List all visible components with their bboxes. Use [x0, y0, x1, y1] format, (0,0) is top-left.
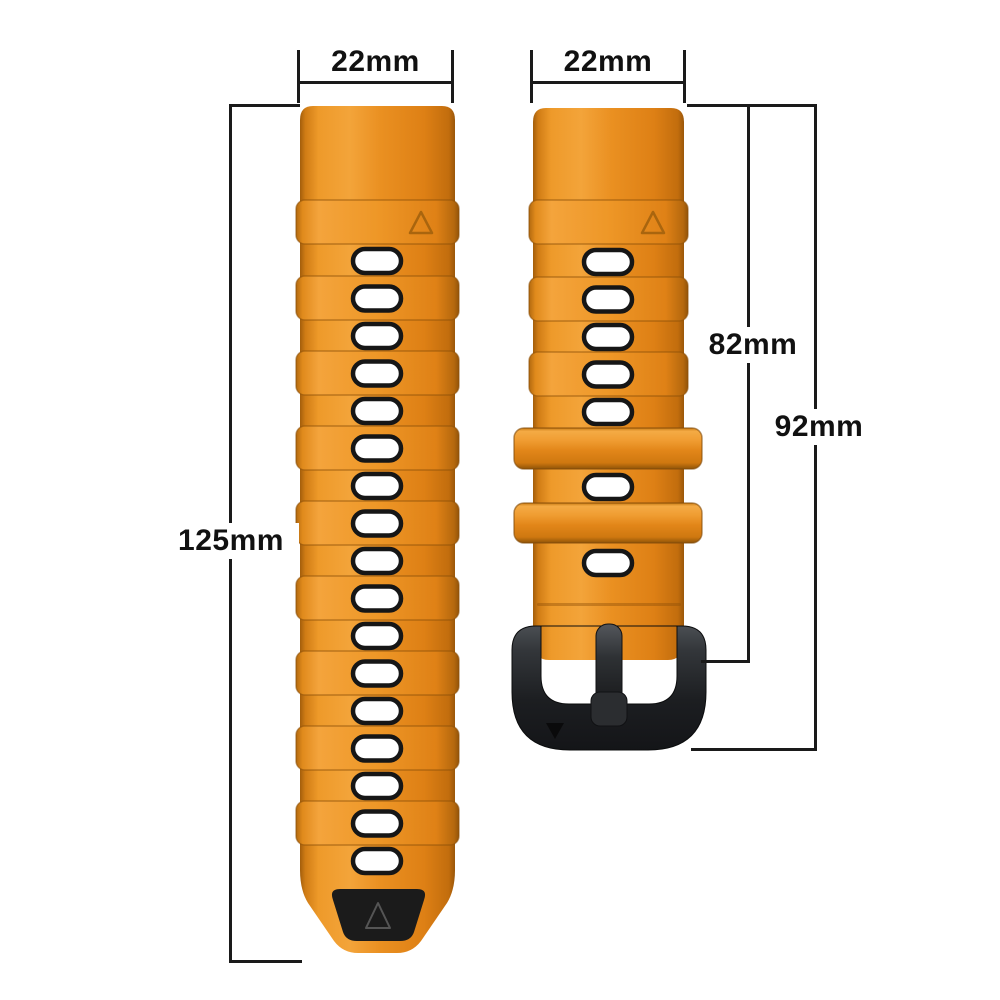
keeper-loop-top	[514, 428, 702, 469]
dim-line-left22	[297, 81, 454, 84]
strap-adjustment-hole	[353, 512, 401, 536]
strap-adjustment-hole	[353, 249, 401, 273]
strap-adjustment-hole	[353, 624, 401, 648]
dim-line-82	[747, 104, 750, 663]
buckle-prong-base	[591, 692, 627, 726]
dim-line-right22	[530, 81, 686, 84]
product-dimension-diagram: 22mm 22mm 125mm 82mm 92mm	[0, 0, 1000, 1000]
strap-adjustment-hole	[353, 437, 401, 461]
right-strap-to-buckle-label: 82mm	[698, 327, 808, 363]
right-strap-width-label: 22mm	[530, 45, 686, 79]
strap-ridge	[529, 200, 688, 244]
strap-holes-layer	[353, 249, 632, 873]
strap-adjustment-hole	[584, 551, 632, 575]
strap-adjustment-hole	[353, 474, 401, 498]
left-strap-tip-patch	[332, 889, 425, 941]
strap-adjustment-hole	[353, 399, 401, 423]
strap-adjustment-hole	[584, 325, 632, 349]
strap-adjustment-hole	[353, 362, 401, 386]
strap-adjustment-hole	[584, 400, 632, 424]
strap-adjustment-hole	[584, 288, 632, 312]
dim-tick-92-bottom	[691, 748, 817, 751]
strap-ridge	[296, 200, 459, 244]
strap-adjustment-hole	[353, 324, 401, 348]
dim-tick-125-top	[229, 104, 300, 107]
dim-tick-125-bottom	[229, 960, 302, 963]
strap-adjustment-hole	[584, 475, 632, 499]
keeper-loop-bottom	[514, 503, 702, 543]
strap-adjustment-hole	[353, 587, 401, 611]
right-strap-total-label: 92mm	[763, 409, 875, 445]
strap-adjustment-hole	[353, 812, 401, 836]
strap-adjustment-hole	[353, 737, 401, 761]
dim-tick-82-bottom	[701, 660, 750, 663]
strap-adjustment-hole	[353, 699, 401, 723]
strap-adjustment-hole	[353, 549, 401, 573]
strap-adjustment-hole	[353, 774, 401, 798]
strap-groove	[537, 603, 681, 606]
watch-strap-illustration	[0, 0, 1000, 1000]
left-strap-width-label: 22mm	[297, 45, 454, 79]
strap-adjustment-hole	[353, 287, 401, 311]
dim-tick-right-top	[687, 104, 817, 107]
strap-adjustment-hole	[353, 662, 401, 686]
strap-adjustment-hole	[353, 849, 401, 873]
left-strap-length-label: 125mm	[163, 523, 299, 559]
buckle	[512, 624, 706, 750]
strap-adjustment-hole	[584, 250, 632, 274]
strap-adjustment-hole	[584, 363, 632, 387]
